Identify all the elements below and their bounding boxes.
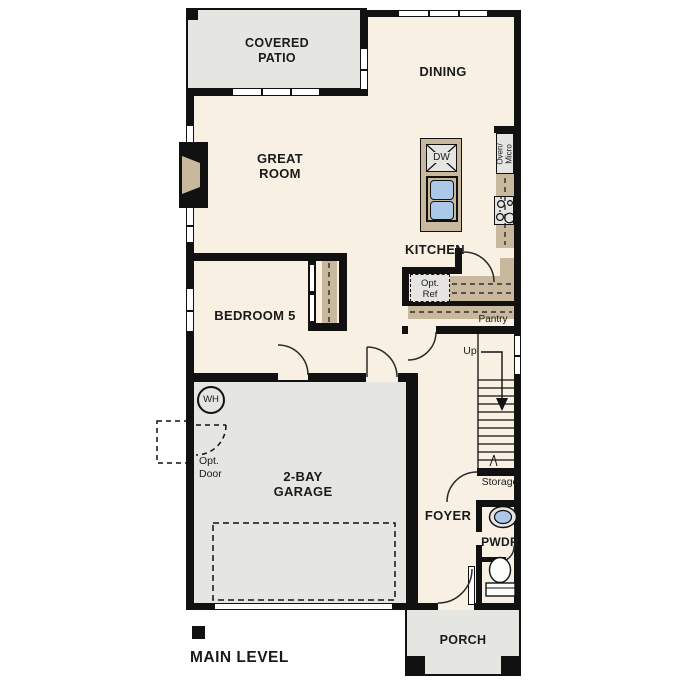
up-label: Up bbox=[461, 346, 479, 357]
opt-door-label: Opt. Door bbox=[199, 455, 233, 481]
hall-garage-door bbox=[367, 347, 397, 377]
toilet bbox=[486, 558, 515, 597]
level-title: MAIN LEVEL bbox=[190, 650, 350, 665]
pantry-label: Pantry bbox=[470, 314, 516, 325]
kitchen-hall-door-arc bbox=[408, 332, 436, 360]
room-label-great-room: GREAT ROOM bbox=[230, 151, 330, 181]
room-label-bedroom5: BEDROOM 5 bbox=[205, 308, 305, 323]
dw-label: DW bbox=[427, 152, 456, 163]
bedroom-door-arc bbox=[278, 345, 308, 375]
room-label-porch: PORCH bbox=[430, 633, 496, 648]
floor-plan: Oven/ Micro Opt. Ref WH bbox=[0, 0, 687, 687]
plan-linework bbox=[0, 0, 687, 687]
room-label-dining: DINING bbox=[398, 64, 488, 79]
pwdr-sink bbox=[490, 507, 517, 528]
storage-door-arc bbox=[447, 472, 477, 502]
fireplace-firebox bbox=[182, 156, 200, 194]
stairs bbox=[478, 333, 514, 468]
stairs-up-arrow bbox=[481, 352, 508, 411]
garage-door-dashed-path bbox=[213, 523, 395, 600]
room-label-pwdr: PWDR bbox=[478, 535, 522, 550]
room-label-foyer: FOYER bbox=[420, 508, 476, 523]
room-label-kitchen: KITCHEN bbox=[394, 242, 476, 257]
room-label-garage: 2-BAY GARAGE bbox=[253, 469, 353, 499]
front-door-arc bbox=[438, 569, 472, 603]
room-label-covered-patio: COVERED PATIO bbox=[217, 36, 337, 66]
storage-label: Storage bbox=[480, 477, 520, 488]
